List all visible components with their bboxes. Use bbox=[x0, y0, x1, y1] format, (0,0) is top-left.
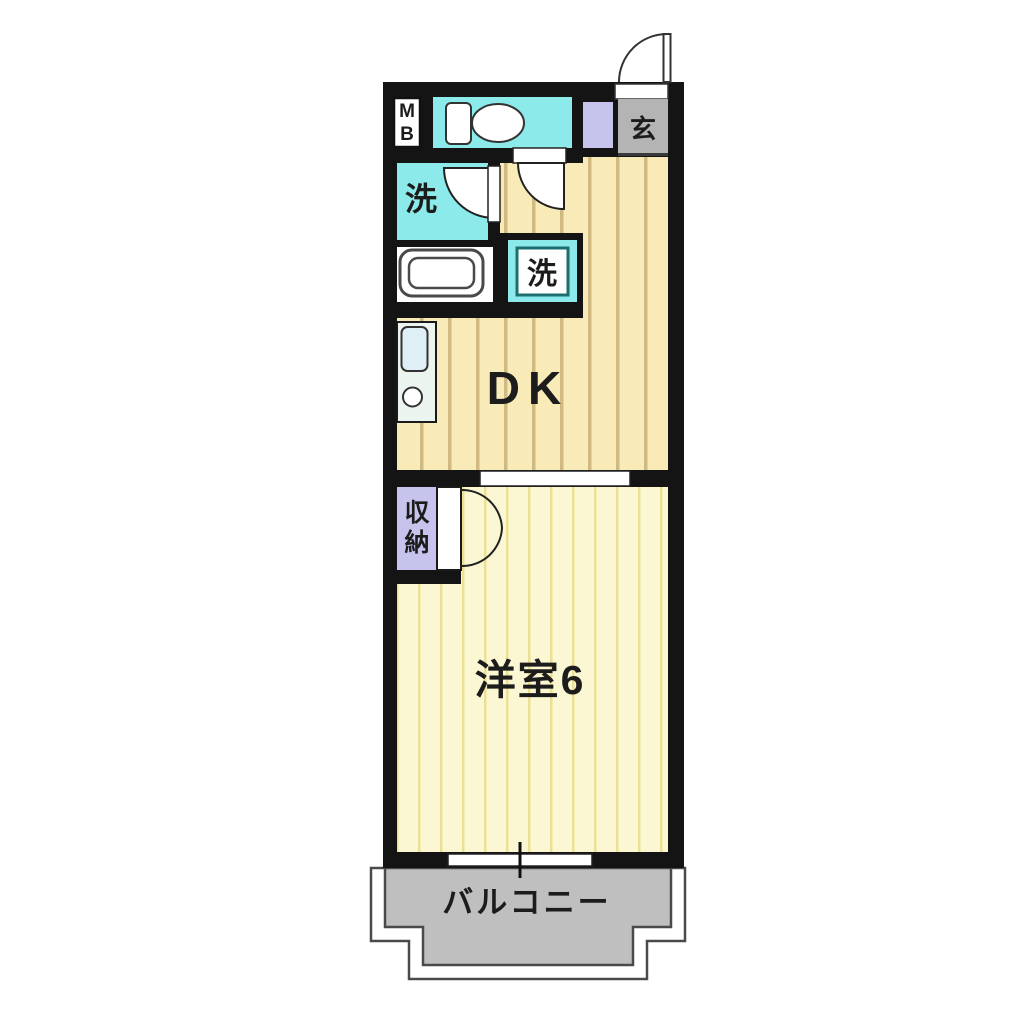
balcony-label: バルコニー bbox=[442, 885, 611, 920]
dk-label: DK bbox=[487, 362, 569, 414]
meter-box-label-m: M bbox=[399, 101, 415, 122]
toilet-bowl-icon bbox=[472, 104, 524, 142]
toilet-threshold bbox=[513, 148, 566, 163]
entrance-threshold bbox=[615, 84, 668, 99]
meter-box-label-b: B bbox=[400, 124, 414, 145]
western-room-floor-left bbox=[397, 584, 461, 852]
entrance-label: 玄 bbox=[630, 114, 656, 144]
washroom-door-leaf bbox=[488, 166, 500, 222]
floor-plan-page: M B 玄 洗 洗 DK 収 納 洋室6 バルコニー bbox=[0, 0, 1024, 1024]
storage-label-char1: 収 bbox=[404, 499, 430, 527]
washroom-label: 洗 bbox=[405, 181, 437, 217]
shoe-cabinet bbox=[583, 102, 613, 148]
dk-right-floor bbox=[583, 157, 668, 318]
entrance-step-line bbox=[618, 153, 668, 156]
dk-room-opening bbox=[480, 471, 630, 486]
laundry-label: 洗 bbox=[527, 258, 557, 291]
floor-plan-drawing: M B 玄 洗 洗 DK 収 納 洋室6 バルコニー bbox=[0, 0, 1024, 1024]
closet-door-panel bbox=[437, 487, 461, 570]
kitchen-burner bbox=[403, 388, 422, 407]
storage-label-char2: 納 bbox=[404, 528, 429, 557]
entrance-door-arc bbox=[619, 34, 667, 82]
western-room-label: 洋室6 bbox=[475, 657, 586, 703]
toilet-tank-icon bbox=[446, 103, 471, 144]
kitchen-sink bbox=[402, 327, 428, 371]
entrance-door-leaf bbox=[664, 34, 671, 82]
